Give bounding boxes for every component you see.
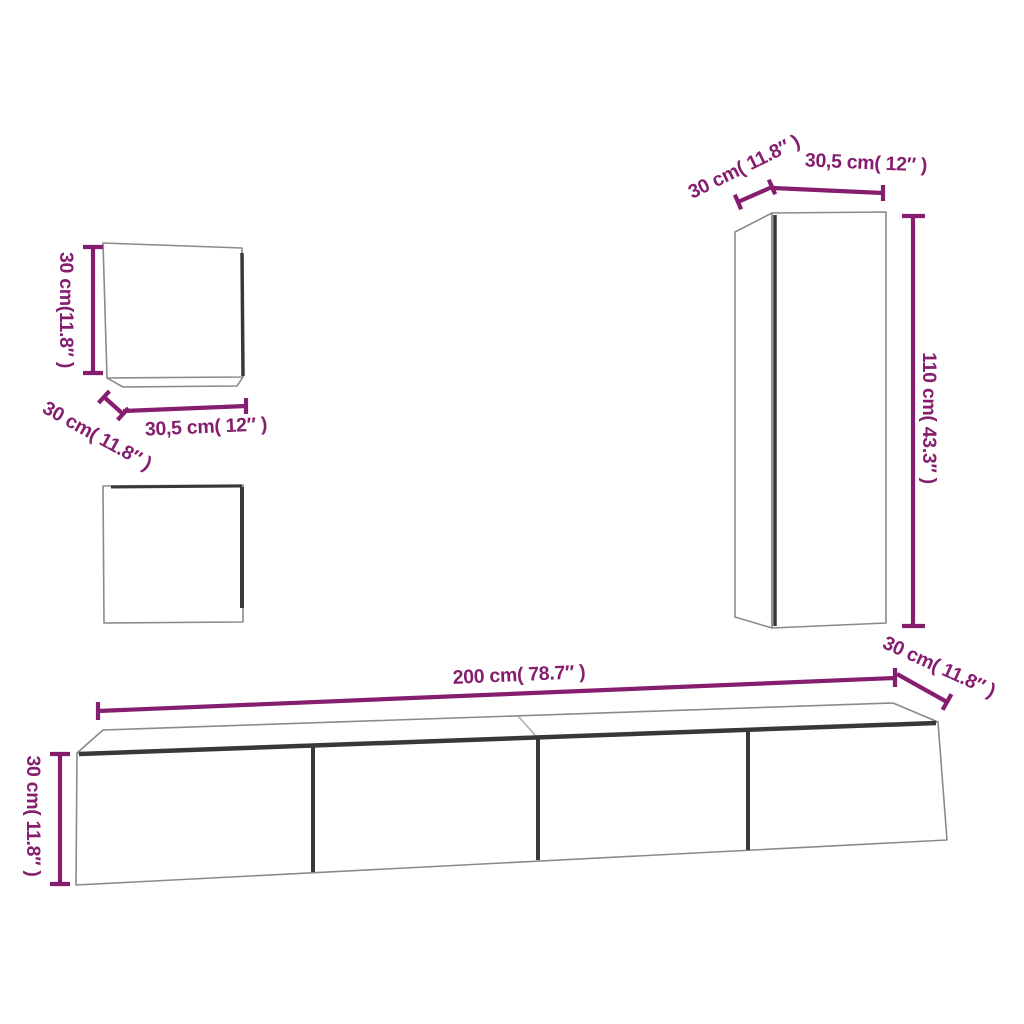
depth-dimension-line: [99, 391, 129, 420]
cabinet-tall-dimensions: 30 cm( 11.8″ ) 30,5 cm( 12″ ) 110 cm( 43…: [685, 131, 940, 626]
width-dimension-line: [123, 398, 246, 414]
height-dimension-line: [50, 754, 70, 884]
cabinet-tall-side-face: [735, 213, 772, 628]
tv-bench: [76, 703, 947, 885]
depth-dimension-label: 30 cm( 11.8″ ): [879, 632, 998, 702]
cabinet-tall-front-face: [772, 212, 886, 628]
height-dimension-label: 30 cm( 11.8″ ): [22, 755, 44, 876]
cabinet-small-top-dimensions: 30 cm(11.8″ ) 30 cm( 11.8″ ) 30,5 cm( 12…: [39, 247, 268, 475]
tv-bench-dimensions: 200 cm( 78.7″ ) 30 cm( 11.8″ ) 30 cm( 11…: [22, 632, 999, 884]
width-dimension-label: 30,5 cm( 12″ ): [144, 413, 267, 440]
cabinet-small-top: [103, 243, 243, 387]
cabinet-small-bottom-front-face: [103, 485, 243, 623]
cabinet-small-bottom-top-shadow: [111, 486, 242, 487]
cabinet-tall: [735, 212, 886, 628]
cabinet-small-bottom: [103, 485, 243, 623]
depth-dimension-line: [735, 180, 775, 210]
dimension-diagram: 30 cm(11.8″ ) 30 cm( 11.8″ ) 30,5 cm( 12…: [0, 0, 1024, 1024]
tv-bench-front-face: [76, 722, 947, 885]
height-dimension-label: 30 cm(11.8″ ): [55, 252, 77, 368]
depth-dimension-label: 30 cm( 11.8″ ): [685, 131, 804, 204]
tv-bench-top-seam: [518, 716, 535, 735]
tv-bench-top-shadow-edge: [79, 723, 936, 754]
cabinet-small-top-front-face: [103, 243, 243, 378]
cabinet-small-top-shadow-edge: [242, 253, 243, 376]
width-dimension-label: 200 cm( 78.7″ ): [452, 661, 586, 689]
height-dimension-label: 110 cm( 43.3″ ): [918, 352, 940, 484]
height-dimension-line: [83, 247, 103, 373]
product-dimension-image: 30 cm(11.8″ ) 30 cm( 11.8″ ) 30,5 cm( 12…: [0, 0, 1024, 1024]
width-dimension-line: [773, 185, 883, 201]
width-dimension-label: 30,5 cm( 12″ ): [804, 149, 927, 176]
